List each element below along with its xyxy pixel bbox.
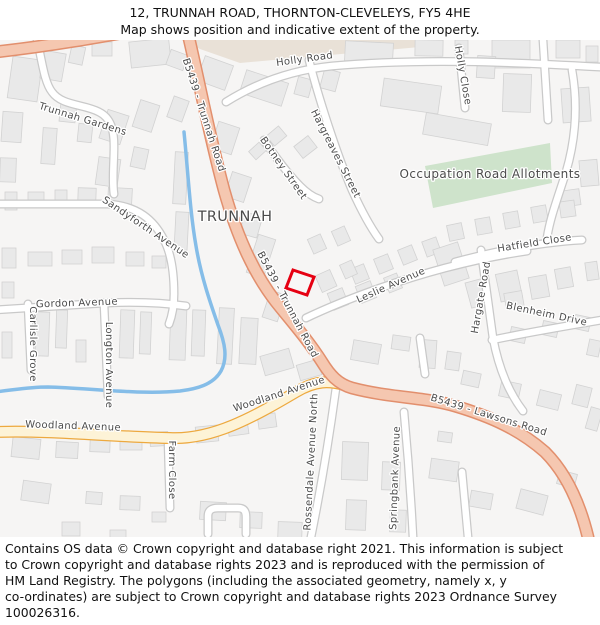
building	[92, 247, 114, 263]
street-label: Carlisle Grove	[27, 306, 38, 382]
copyright-line: co-ordinates) are subject to Crown copyr…	[5, 589, 595, 605]
property-address-title: 12, TRUNNAH ROAD, THORNTON-CLEVELEYS, FY…	[0, 4, 600, 21]
building	[86, 491, 103, 504]
building	[260, 348, 294, 375]
building	[398, 245, 418, 265]
building	[2, 282, 14, 298]
street-label: Holly Close	[452, 45, 473, 106]
building	[126, 252, 144, 266]
report-header: 12, TRUNNAH ROAD, THORNTON-CLEVELEYS, FY…	[0, 0, 600, 40]
building	[374, 254, 394, 274]
building	[502, 74, 531, 113]
building	[320, 68, 341, 91]
building	[423, 112, 492, 145]
building	[41, 128, 57, 165]
copyright-line: HM Land Registry. The polygons (includin…	[5, 573, 595, 589]
road	[493, 338, 523, 411]
map-description-subtitle: Map shows position and indicative extent…	[0, 21, 600, 38]
building	[21, 480, 52, 504]
building	[586, 46, 598, 62]
building	[585, 407, 600, 431]
building	[167, 96, 190, 122]
building	[554, 267, 573, 289]
building	[341, 442, 368, 481]
building	[191, 310, 206, 356]
building	[132, 100, 160, 133]
building	[62, 250, 82, 264]
copyright-line: to Crown copyright and database rights 2…	[5, 557, 595, 573]
building	[139, 312, 151, 354]
building	[119, 310, 135, 358]
building	[1, 111, 23, 142]
building	[437, 431, 452, 443]
building	[294, 136, 317, 159]
building	[76, 340, 86, 362]
road	[309, 60, 379, 239]
building	[380, 78, 441, 114]
street-label: B5439 - Trunnah Road	[254, 250, 319, 360]
building	[28, 252, 52, 266]
building	[531, 205, 549, 223]
place-label: TRUNNAH	[197, 209, 273, 225]
building	[528, 275, 550, 300]
building	[307, 234, 326, 254]
street-label: Farm Close	[166, 440, 177, 499]
building	[55, 190, 67, 200]
copyright-line: Contains OS data © Crown copyright and d…	[5, 541, 595, 557]
building	[516, 489, 548, 516]
building	[130, 147, 149, 170]
building	[278, 522, 303, 537]
building	[461, 370, 482, 387]
building	[2, 248, 16, 268]
street-label: Hargreaves Street	[308, 108, 362, 200]
building	[415, 40, 443, 56]
building	[331, 226, 350, 246]
copyright-line: 100026316.	[5, 605, 595, 621]
street-label: Occupation Road Allotments	[400, 167, 581, 181]
building	[475, 217, 493, 235]
building	[429, 458, 460, 482]
building	[62, 522, 80, 536]
building	[536, 390, 561, 411]
road-casing	[306, 251, 527, 318]
building	[586, 339, 600, 357]
building	[579, 159, 599, 186]
building	[55, 310, 67, 348]
building	[447, 223, 465, 242]
building	[345, 500, 366, 531]
property-map: Holly RoadHolly CloseHargreaves StreetBo…	[0, 40, 600, 537]
building	[56, 441, 79, 458]
building	[0, 158, 16, 183]
building	[152, 256, 166, 268]
building	[469, 490, 493, 510]
building	[585, 261, 599, 280]
building	[556, 40, 580, 58]
building	[391, 335, 411, 351]
copyright-footer: Contains OS data © Crown copyright and d…	[0, 537, 600, 625]
building	[239, 318, 258, 365]
building	[152, 512, 166, 522]
property-outline	[286, 270, 314, 295]
building	[110, 530, 126, 537]
street-label: B5439 - Lawsons Road	[429, 393, 548, 439]
building	[120, 496, 140, 511]
street-label: Longton Avenue	[103, 322, 114, 409]
building	[315, 270, 337, 293]
building	[2, 332, 12, 358]
building	[11, 437, 41, 460]
building	[559, 200, 576, 218]
building	[445, 351, 461, 371]
street-label: Hatfield Close	[497, 232, 573, 255]
map-canvas: Holly RoadHolly CloseHargreaves StreetBo…	[0, 40, 600, 537]
building	[350, 340, 381, 365]
building	[572, 384, 592, 407]
building	[129, 40, 171, 68]
building	[503, 211, 521, 229]
